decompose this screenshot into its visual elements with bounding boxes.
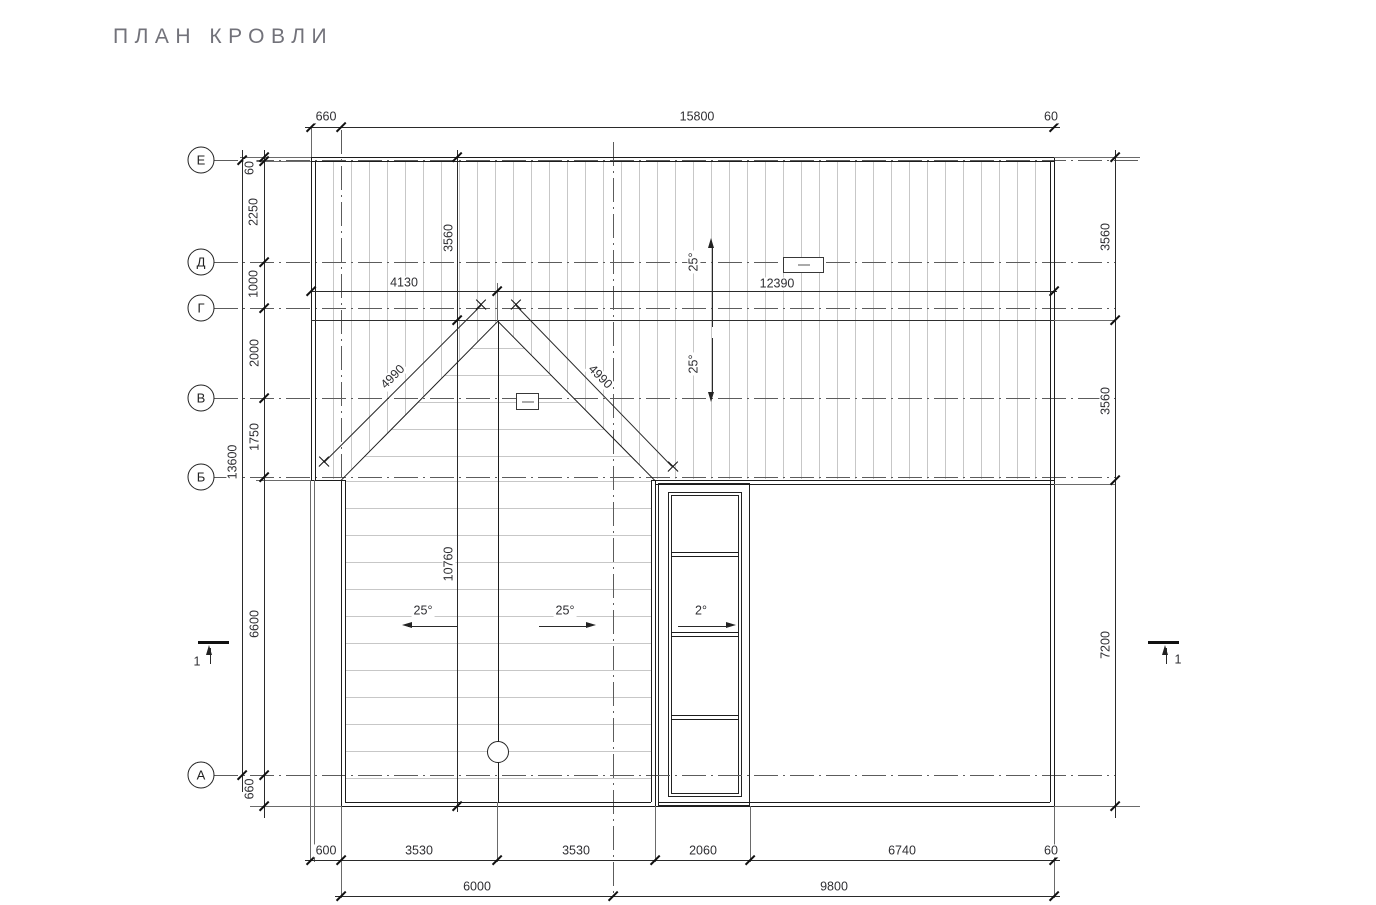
line bbox=[1054, 157, 1055, 806]
dim-b1-2060: 2060 bbox=[687, 844, 719, 857]
line bbox=[240, 157, 311, 158]
slope-arrow-left-icon bbox=[402, 622, 412, 628]
dim-star-mark bbox=[317, 455, 331, 469]
line bbox=[341, 480, 342, 806]
axis-line bbox=[214, 775, 1115, 776]
roof-plan-canvas: ПЛАН КРОВЛИ Е Д Г В Б А 660 15800 60 413… bbox=[0, 0, 1376, 905]
dim-star-mark bbox=[509, 298, 523, 312]
line bbox=[408, 626, 457, 627]
axis-bubble-d: Д bbox=[188, 249, 215, 276]
section-arrow-right-icon bbox=[1162, 645, 1168, 655]
centerline-dash bbox=[798, 265, 810, 266]
axis-bubble-e: Е bbox=[188, 147, 215, 174]
line bbox=[498, 321, 499, 802]
axis-line bbox=[214, 262, 1115, 263]
line bbox=[671, 719, 739, 720]
line bbox=[311, 127, 312, 157]
roof-vent-large bbox=[783, 257, 824, 273]
section-label-right: 1 bbox=[1173, 653, 1184, 666]
axis-line bbox=[214, 398, 1115, 399]
line bbox=[1054, 484, 1115, 485]
dim-right-3560-top: 3560 bbox=[1099, 221, 1112, 253]
line bbox=[655, 806, 656, 862]
line bbox=[1115, 150, 1116, 818]
section-arrow-left-icon bbox=[206, 645, 212, 655]
line bbox=[1050, 161, 1051, 802]
line bbox=[457, 150, 458, 812]
line bbox=[341, 806, 1054, 807]
dim-b1-60: 60 bbox=[1042, 844, 1060, 857]
line bbox=[655, 480, 656, 806]
line bbox=[311, 157, 1054, 158]
line bbox=[341, 806, 342, 898]
line bbox=[305, 127, 1060, 128]
dim-12390: 12390 bbox=[758, 277, 797, 290]
axis-bubble-v: В bbox=[188, 385, 215, 412]
axis-bubble-b: Б bbox=[188, 464, 215, 491]
line bbox=[750, 806, 751, 862]
line bbox=[678, 626, 728, 627]
line bbox=[264, 150, 265, 818]
line bbox=[314, 480, 315, 862]
line bbox=[311, 161, 1054, 162]
dim-left-2000: 2000 bbox=[248, 337, 261, 369]
line bbox=[651, 480, 652, 802]
axis-bubble-a: А bbox=[188, 762, 215, 789]
line bbox=[1054, 320, 1115, 321]
axis-line bbox=[214, 477, 1115, 478]
dim-b2-9800: 9800 bbox=[818, 880, 850, 893]
section-label-left: 1 bbox=[192, 655, 203, 668]
line bbox=[671, 715, 739, 716]
slope-lower-25: 25° bbox=[687, 353, 700, 376]
line bbox=[539, 626, 588, 627]
line bbox=[345, 802, 651, 803]
dim-star-mark bbox=[666, 460, 680, 474]
dim-left-2250: 2250 bbox=[247, 196, 260, 228]
line bbox=[335, 896, 1060, 897]
line bbox=[242, 150, 243, 792]
dim-star-mark bbox=[474, 298, 488, 312]
slope-gable-right-25: 25° bbox=[554, 604, 577, 617]
line bbox=[310, 480, 311, 862]
dim-left-1750: 1750 bbox=[248, 421, 261, 453]
axis-line bbox=[341, 130, 342, 482]
line bbox=[305, 860, 1060, 861]
dim-int-3560: 3560 bbox=[442, 222, 455, 254]
dim-b1-3530a: 3530 bbox=[403, 844, 435, 857]
dim-left-660: 660 bbox=[243, 777, 256, 802]
dim-left-6600: 6600 bbox=[248, 608, 261, 640]
dim-b2-6000: 6000 bbox=[461, 880, 493, 893]
axis-line bbox=[613, 142, 614, 898]
line bbox=[655, 484, 1054, 485]
line bbox=[671, 556, 739, 557]
dim-b1-600: 600 bbox=[314, 844, 339, 857]
line bbox=[671, 636, 739, 637]
dim-top-15800: 15800 bbox=[678, 110, 717, 123]
line bbox=[671, 552, 739, 553]
line bbox=[311, 320, 1054, 321]
dim-top-60: 60 bbox=[1042, 110, 1060, 123]
line bbox=[671, 632, 739, 633]
line bbox=[345, 480, 346, 802]
axis-line bbox=[214, 308, 1115, 309]
dim-b1-3530b: 3530 bbox=[560, 844, 592, 857]
line bbox=[311, 157, 312, 480]
slope-arrow-up-icon bbox=[708, 238, 714, 248]
dim-b1-6740: 6740 bbox=[886, 844, 918, 857]
line bbox=[1054, 806, 1140, 807]
drawing-title: ПЛАН КРОВЛИ bbox=[113, 25, 333, 49]
shaft-frame-inner bbox=[671, 495, 739, 794]
line bbox=[198, 641, 229, 644]
line bbox=[658, 802, 1050, 803]
slope-arrow-right-icon bbox=[586, 622, 596, 628]
axis-bubble-g: Г bbox=[188, 295, 215, 322]
dim-left-60: 60 bbox=[243, 159, 256, 177]
line bbox=[651, 480, 1054, 481]
dim-right-7200: 7200 bbox=[1099, 629, 1112, 661]
dim-int-10760: 10760 bbox=[442, 545, 455, 584]
line bbox=[311, 291, 1057, 292]
roof-vent-small bbox=[516, 393, 539, 410]
line bbox=[712, 246, 713, 327]
slope-gable-left-25: 25° bbox=[412, 604, 435, 617]
dim-top-660: 660 bbox=[314, 110, 339, 123]
dim-right-3560-mid: 3560 bbox=[1099, 385, 1112, 417]
dim-left-13600: 13600 bbox=[226, 443, 239, 482]
line bbox=[712, 338, 713, 394]
line bbox=[1054, 157, 1140, 158]
dim-4130: 4130 bbox=[388, 276, 420, 289]
slope-upper-25: 25° bbox=[687, 251, 700, 274]
line bbox=[497, 802, 498, 862]
line bbox=[1148, 641, 1179, 644]
centerline-dash bbox=[522, 401, 534, 402]
dim-left-1000: 1000 bbox=[247, 268, 260, 300]
slope-shaft-2: 2° bbox=[693, 604, 709, 617]
shaft-slope-arrow-icon bbox=[726, 622, 736, 628]
slope-arrow-down-icon bbox=[708, 392, 714, 402]
roof-drain-circle bbox=[487, 741, 509, 763]
